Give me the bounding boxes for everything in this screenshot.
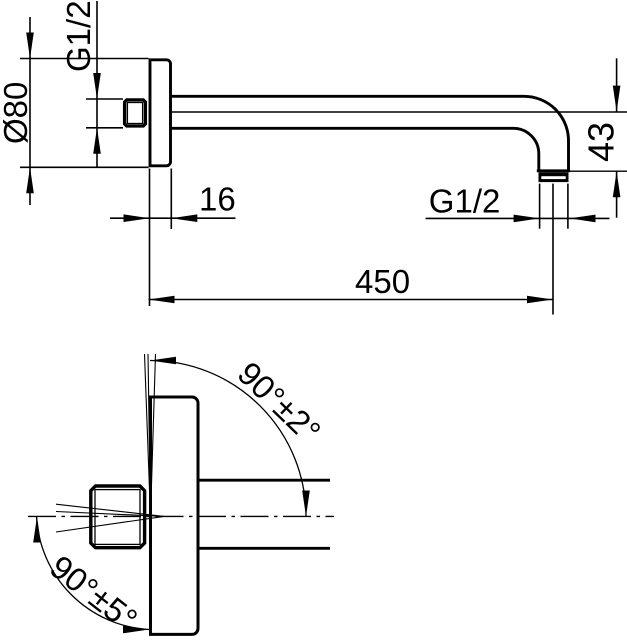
svg-text:450: 450: [355, 263, 410, 300]
svg-text:43: 43: [581, 122, 622, 162]
svg-text:G1/2: G1/2: [60, 0, 97, 72]
svg-text:G1/2: G1/2: [429, 183, 501, 220]
svg-text:Ø80: Ø80: [0, 82, 34, 144]
svg-text:16: 16: [199, 181, 236, 218]
